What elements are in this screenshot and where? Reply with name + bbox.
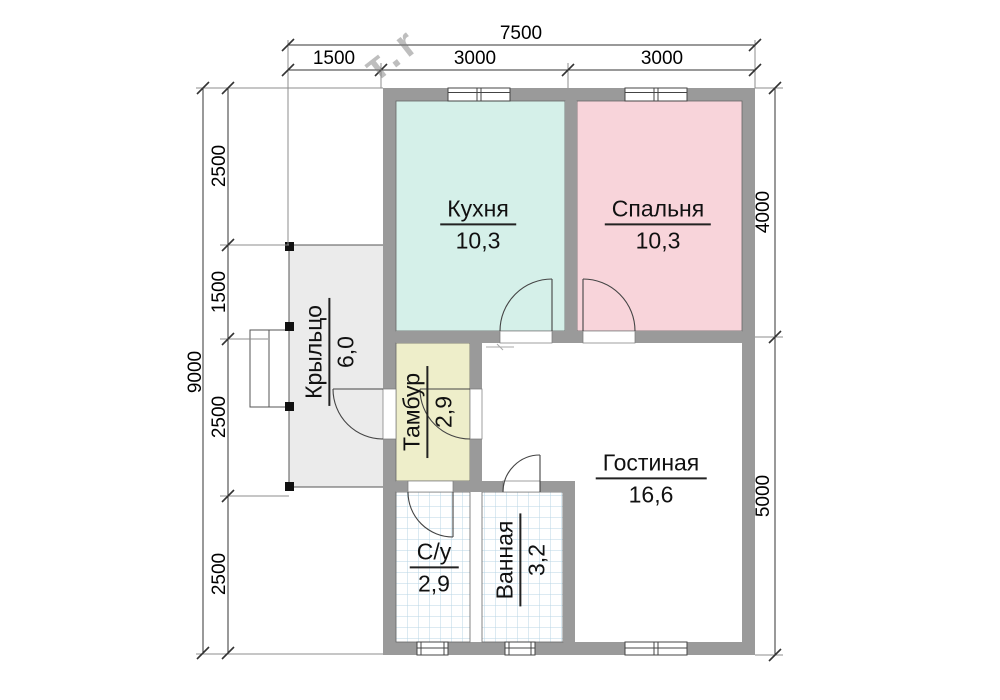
window-bedroom (625, 88, 687, 101)
wc-label: С/у 2,9 (410, 538, 459, 597)
room-area: 6,0 (331, 298, 360, 406)
opening-vestibule-living (470, 389, 482, 439)
dim-left-total: 9000 (185, 351, 207, 393)
opening-bedroom (583, 331, 635, 343)
kitchen-label: Кухня 10,3 (440, 195, 516, 254)
room-name: Тамбур (398, 366, 428, 458)
porch-post (285, 482, 294, 491)
living-label: Гостиная 16,6 (596, 449, 707, 508)
porch-post (285, 242, 294, 251)
opening-living-bathroom (503, 481, 540, 492)
room-name: Крыльцо (300, 298, 330, 406)
room-area: 2,9 (429, 366, 458, 458)
bathroom-label: Ванная 3,2 (491, 514, 550, 607)
dim-right-seg-4000: 4000 (753, 191, 775, 233)
opening-vestibule-wc (408, 481, 453, 492)
dim-top-seg-1500: 1500 (313, 48, 355, 70)
wall-bath-living (563, 481, 575, 642)
window-wc (417, 642, 448, 655)
dim-top-total: 7500 (500, 23, 542, 45)
porch-steps (250, 330, 289, 407)
window-living (625, 642, 687, 655)
dim-right-seg-5000: 5000 (753, 475, 775, 517)
dim-top-seg-3000a: 3000 (454, 48, 496, 70)
room-name: Спальня (605, 195, 711, 225)
room-area: 2,9 (410, 569, 459, 598)
floor-plan-canvas: т.r Кухня 10,3 Спальня 10,3 Гостиная 16,… (0, 0, 1000, 700)
porch-post (285, 402, 294, 411)
room-area: 10,3 (605, 226, 711, 255)
room-name: Гостиная (596, 449, 707, 479)
dim-left-seg-2500b: 2500 (209, 396, 231, 438)
dim-top-seg-3000b: 3000 (641, 48, 683, 70)
room-area: 16,6 (596, 480, 707, 509)
opening-porch-entry (383, 389, 396, 439)
dim-left-seg-1500: 1500 (209, 271, 231, 313)
wall-middle-horizontal (396, 331, 742, 343)
vestibule-label: Тамбур 2,9 (398, 366, 457, 458)
bedroom-label: Спальня 10,3 (605, 195, 711, 254)
wall-kitchen-bedroom (565, 101, 577, 331)
dim-left-seg-2500c: 2500 (209, 553, 231, 595)
porch-post (285, 322, 294, 331)
room-area: 10,3 (440, 226, 516, 255)
window-kitchen (448, 88, 510, 101)
room-name: С/у (410, 538, 459, 568)
porch-label: Крыльцо 6,0 (300, 298, 359, 406)
opening-kitchen (500, 331, 552, 343)
room-area: 3,2 (522, 514, 551, 607)
room-name: Кухня (440, 195, 516, 225)
room-name: Ванная (491, 514, 521, 607)
dim-left-seg-2500a: 2500 (209, 145, 231, 187)
window-bathroom (505, 642, 535, 655)
